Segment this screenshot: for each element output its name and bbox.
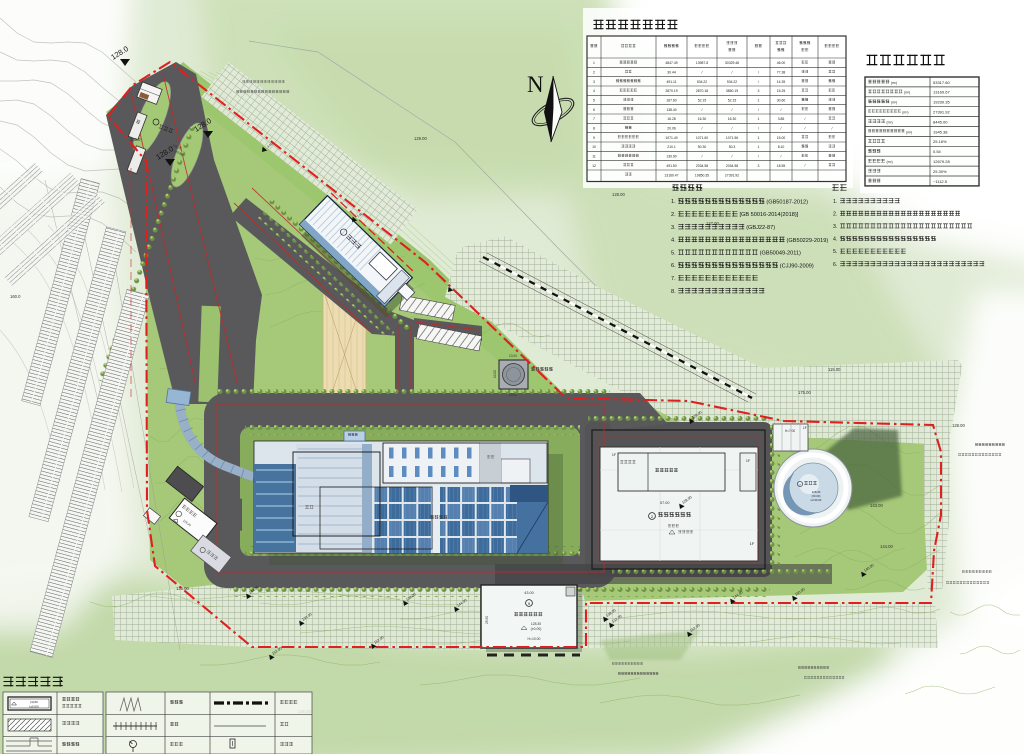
svg-text:20.06: 20.06 [667, 127, 676, 131]
svg-text:/: / [702, 71, 703, 75]
svg-text:/: / [732, 127, 733, 131]
svg-text:0.54: 0.54 [933, 149, 942, 154]
svg-text:30.60: 30.60 [777, 99, 786, 103]
svg-text:4.: 4. [833, 237, 837, 243]
svg-text:H=30.00: H=30.00 [811, 498, 822, 502]
svg-text:127.00: 127.00 [706, 221, 719, 226]
svg-text:H=10.00: H=10.00 [528, 637, 541, 641]
svg-text:77.38: 77.38 [777, 71, 786, 75]
svg-text:/: / [702, 127, 703, 131]
svg-text:/: / [758, 80, 759, 84]
svg-text:19230.35: 19230.35 [933, 100, 950, 105]
svg-text:175.00: 175.00 [798, 390, 811, 395]
svg-text:1F: 1F [750, 541, 755, 546]
svg-text:128.00: 128.00 [612, 192, 625, 197]
svg-text:~1112.5: ~1112.5 [933, 179, 948, 184]
svg-text:/: / [781, 155, 782, 159]
svg-text:/: / [732, 108, 733, 112]
svg-text:1945.38: 1945.38 [933, 129, 948, 134]
svg-text:(m²): (m²) [891, 101, 897, 105]
svg-text:491.50: 491.50 [666, 164, 676, 168]
svg-text:3.85: 3.85 [778, 117, 785, 121]
svg-text:/: / [805, 117, 806, 121]
svg-text:/: / [732, 71, 733, 75]
svg-text:10.00: 10.00 [493, 370, 497, 378]
svg-text:57.00: 57.00 [660, 501, 670, 505]
svg-text:1: 1 [758, 145, 760, 149]
svg-text:12: 12 [592, 164, 596, 168]
svg-text::: : [60, 677, 63, 689]
svg-text:10.00: 10.00 [509, 393, 517, 397]
svg-text:25.30%: 25.30% [933, 169, 947, 174]
svg-text:6.: 6. [833, 262, 837, 268]
svg-text:/: / [702, 155, 703, 159]
svg-text:7: 7 [593, 117, 595, 121]
svg-text:15.25: 15.25 [777, 89, 786, 93]
svg-text:16.28: 16.28 [667, 117, 676, 121]
svg-text:2: 2 [593, 71, 595, 75]
svg-text:52.15: 52.15 [698, 99, 707, 103]
svg-text:52.15: 52.15 [728, 99, 737, 103]
svg-text:25.16%: 25.16% [933, 139, 947, 144]
svg-text:12679.28: 12679.28 [933, 159, 950, 164]
svg-text:(m²): (m²) [891, 81, 897, 85]
svg-text:/: / [758, 155, 759, 159]
svg-text:3: 3 [758, 89, 760, 93]
svg-text:1: 1 [593, 61, 595, 65]
svg-text:8.: 8. [671, 289, 676, 295]
svg-text:27391.92: 27391.92 [933, 110, 950, 115]
svg-text:1: 1 [758, 117, 760, 121]
svg-text:125.00: 125.00 [176, 586, 189, 591]
svg-text:8.10: 8.10 [778, 145, 785, 149]
svg-text:(GB50229-2019): (GB50229-2019) [787, 238, 829, 244]
svg-text:/: / [781, 127, 782, 131]
svg-text:3.: 3. [671, 225, 676, 231]
svg-text:8445.00: 8445.00 [933, 119, 948, 124]
svg-text:(m²): (m²) [902, 111, 908, 115]
svg-text:167.60: 167.60 [666, 99, 676, 103]
svg-text:/: / [702, 108, 703, 112]
svg-text:2.: 2. [833, 211, 837, 217]
svg-text:5: 5 [593, 99, 595, 103]
svg-text:160.0: 160.0 [10, 294, 21, 299]
svg-text:/: / [805, 164, 806, 168]
svg-text:2034.58: 2034.58 [696, 164, 708, 168]
svg-text:14.35: 14.35 [777, 80, 786, 84]
svg-text:19850.35: 19850.35 [695, 174, 709, 178]
svg-text:30329.48: 30329.48 [725, 61, 739, 65]
svg-text:/: / [781, 108, 782, 112]
svg-text:1071.40: 1071.40 [665, 136, 677, 140]
svg-text:6.: 6. [671, 263, 676, 269]
svg-text:5.: 5. [671, 250, 676, 256]
svg-text:[GB 50016-2014(2018)]: [GB 50016-2014(2018)] [739, 212, 798, 218]
svg-text:H=7.00: H=7.00 [785, 429, 796, 433]
svg-text:(m²): (m²) [886, 160, 892, 164]
svg-text:16.30: 16.30 [728, 117, 737, 121]
svg-text:1071.56: 1071.56 [726, 136, 738, 140]
svg-text:130.90: 130.90 [666, 155, 676, 159]
svg-text:210.1: 210.1 [667, 145, 676, 149]
svg-text:/: / [758, 71, 759, 75]
svg-text:1F: 1F [803, 426, 807, 430]
svg-text:491.11: 491.11 [666, 80, 676, 84]
svg-text:4: 4 [593, 89, 595, 93]
svg-text:(±0.00): (±0.00) [29, 705, 38, 709]
svg-text:128.00: 128.00 [952, 423, 965, 428]
svg-text:50.30: 50.30 [698, 145, 707, 149]
svg-text:2870.19: 2870.19 [665, 89, 677, 93]
svg-text:128.30: 128.30 [531, 622, 541, 626]
svg-text:3: 3 [593, 80, 595, 84]
svg-text:3850.19: 3850.19 [726, 89, 738, 93]
svg-text:1: 1 [758, 99, 760, 103]
svg-text:534.22: 534.22 [727, 80, 737, 84]
svg-text:N: N [527, 72, 544, 97]
svg-text:/: / [758, 108, 759, 112]
svg-text:15.00: 15.00 [777, 136, 786, 140]
svg-text:2.: 2. [671, 212, 676, 218]
svg-text:(±0.00): (±0.00) [531, 627, 542, 631]
svg-text:129.00: 129.00 [414, 136, 427, 141]
svg-text:13987.8: 13987.8 [696, 61, 708, 65]
svg-text:/: / [758, 127, 759, 131]
svg-text:4.: 4. [671, 238, 676, 244]
svg-text:(GB50187-2012): (GB50187-2012) [766, 199, 808, 205]
svg-text:8: 8 [593, 127, 595, 131]
svg-text:53317.60: 53317.60 [933, 80, 950, 85]
svg-text:534.22: 534.22 [697, 80, 707, 84]
svg-text:115.00: 115.00 [828, 367, 841, 372]
svg-text:/: / [805, 126, 806, 130]
svg-text:6: 6 [593, 108, 595, 112]
svg-text:5.: 5. [833, 249, 837, 255]
svg-text:144.00: 144.00 [880, 544, 893, 549]
svg-text:13160.47: 13160.47 [664, 174, 678, 178]
svg-text:143.00: 143.00 [870, 503, 883, 508]
svg-text:27391.92: 27391.92 [725, 174, 739, 178]
svg-text:(GBJ22-87): (GBJ22-87) [746, 225, 775, 231]
svg-text:30.44: 30.44 [667, 71, 676, 75]
svg-text:3: 3 [758, 164, 760, 168]
svg-text:1.: 1. [833, 199, 837, 205]
svg-text:7.: 7. [671, 276, 676, 282]
svg-text:1071.60: 1071.60 [696, 136, 708, 140]
svg-text:(GB50049-2011): (GB50049-2011) [760, 251, 801, 257]
svg-text:3.: 3. [833, 224, 837, 230]
svg-text:2870.18: 2870.18 [696, 89, 708, 93]
svg-text:(CJJ90-2009): (CJJ90-2009) [780, 263, 814, 269]
svg-text:16.30: 16.30 [698, 117, 707, 121]
svg-text:(m²): (m²) [886, 120, 892, 124]
svg-text:18.55: 18.55 [777, 164, 786, 168]
svg-text:1.: 1. [671, 199, 676, 205]
svg-text:(m²): (m²) [904, 91, 910, 95]
svg-text:11: 11 [592, 155, 596, 159]
svg-text:43.00: 43.00 [524, 591, 534, 595]
svg-text:/: / [732, 155, 733, 159]
svg-text:138.40: 138.40 [666, 108, 676, 112]
svg-text:9: 9 [593, 136, 595, 140]
svg-text:13169.67: 13169.67 [933, 90, 950, 95]
svg-text:4847.49: 4847.49 [665, 61, 677, 65]
svg-text:2034.58: 2034.58 [726, 164, 738, 168]
svg-text:[4] 80: [4] 80 [30, 700, 38, 704]
svg-text:160.0: 160.0 [130, 137, 141, 142]
svg-text:25.50: 25.50 [485, 616, 489, 624]
svg-text:10: 10 [592, 145, 596, 149]
svg-text:10.00: 10.00 [509, 354, 517, 358]
svg-text:46.00: 46.00 [777, 61, 786, 65]
svg-text:1: 1 [758, 136, 760, 140]
svg-text:(m²): (m²) [906, 130, 912, 134]
svg-text:/: / [832, 126, 833, 130]
svg-text:50.3: 50.3 [729, 145, 736, 149]
